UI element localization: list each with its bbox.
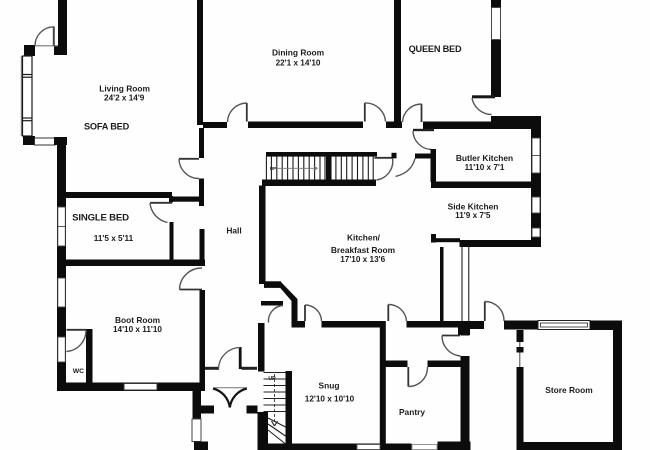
svg-text:Pantry: Pantry — [399, 407, 425, 417]
svg-text:Kitchen/: Kitchen/ — [347, 233, 381, 243]
svg-text:Store Room: Store Room — [545, 385, 592, 395]
svg-text:Side Kitchen: Side Kitchen — [448, 202, 499, 212]
svg-text:17'10 x 13'6: 17'10 x 13'6 — [340, 255, 385, 264]
svg-text:11'9 x 7'5: 11'9 x 7'5 — [455, 211, 491, 220]
svg-text:SINGLE BED: SINGLE BED — [72, 213, 129, 224]
svg-text:Boot Room: Boot Room — [115, 315, 160, 325]
svg-text:UP: UP — [270, 166, 276, 171]
svg-text:Hall: Hall — [226, 226, 241, 236]
svg-text:12'10 x 10'10: 12'10 x 10'10 — [305, 395, 355, 404]
svg-text:Breakfast Room: Breakfast Room — [331, 245, 395, 255]
svg-text:Living Room: Living Room — [99, 84, 150, 94]
svg-text:Dining Room: Dining Room — [272, 48, 324, 58]
svg-text:24'2 x 14'9: 24'2 x 14'9 — [104, 93, 145, 102]
svg-text:Snug: Snug — [319, 381, 340, 391]
svg-text:11'5 x 5'11: 11'5 x 5'11 — [94, 234, 134, 243]
svg-text:22'1 x 14'10: 22'1 x 14'10 — [276, 59, 321, 68]
svg-text:14'10 x 11'10: 14'10 x 11'10 — [113, 325, 162, 334]
svg-text:QUEEN BED: QUEEN BED — [409, 44, 462, 54]
svg-text:11'10 x 7'1: 11'10 x 7'1 — [465, 163, 505, 172]
svg-text:Butler Kitchen: Butler Kitchen — [456, 153, 513, 163]
svg-text:SOFA BED: SOFA BED — [84, 122, 130, 132]
svg-text:UP: UP — [268, 376, 276, 382]
svg-text:WC: WC — [73, 368, 84, 375]
